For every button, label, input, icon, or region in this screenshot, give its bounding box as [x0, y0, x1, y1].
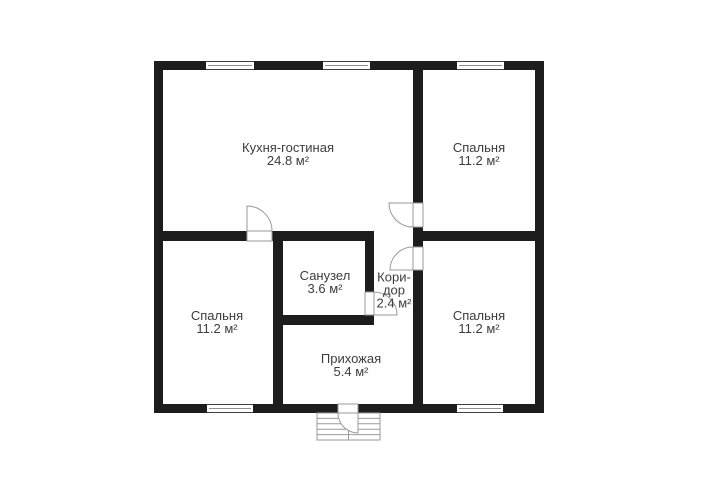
door-leaf-bathroom: [365, 292, 374, 315]
door-and-steps-symbols: [0, 0, 702, 502]
room-area: 2.4 м²: [377, 297, 412, 310]
door-leaf-bedroom-top-right: [413, 203, 423, 227]
room-label-bedroom-bottom-left: Спальня 11.2 м²: [191, 309, 243, 335]
door-leaf-entrance: [338, 404, 358, 413]
room-area: 24.8 м²: [242, 154, 334, 167]
door-arc-bedroom-top-right: [389, 203, 413, 227]
door-leaf-bedroom-bottom-left: [247, 231, 272, 241]
room-area: 11.2 м²: [453, 154, 505, 167]
room-label-bathroom: Санузел 3.6 м²: [300, 269, 351, 295]
room-label-kitchen-living: Кухня-гостиная 24.8 м²: [242, 141, 334, 167]
room-label-corridor: Кори- дор 2.4 м²: [377, 271, 412, 310]
room-area: 11.2 м²: [453, 322, 505, 335]
room-area: 3.6 м²: [300, 282, 351, 295]
door-arc-bedroom-bottom-right: [390, 247, 413, 270]
room-label-bedroom-top-right: Спальня 11.2 м²: [453, 141, 505, 167]
room-label-bedroom-bottom-right: Спальня 11.2 м²: [453, 309, 505, 335]
door-arc-bedroom-bottom-left: [247, 206, 272, 231]
room-area: 11.2 м²: [191, 322, 243, 335]
door-leaf-bedroom-bottom-right: [413, 247, 423, 270]
room-area: 5.4 м²: [321, 365, 381, 378]
room-label-hallway: Прихожая 5.4 м²: [321, 352, 381, 378]
floor-plan: Кухня-гостиная 24.8 м² Спальня 11.2 м² С…: [0, 0, 702, 502]
